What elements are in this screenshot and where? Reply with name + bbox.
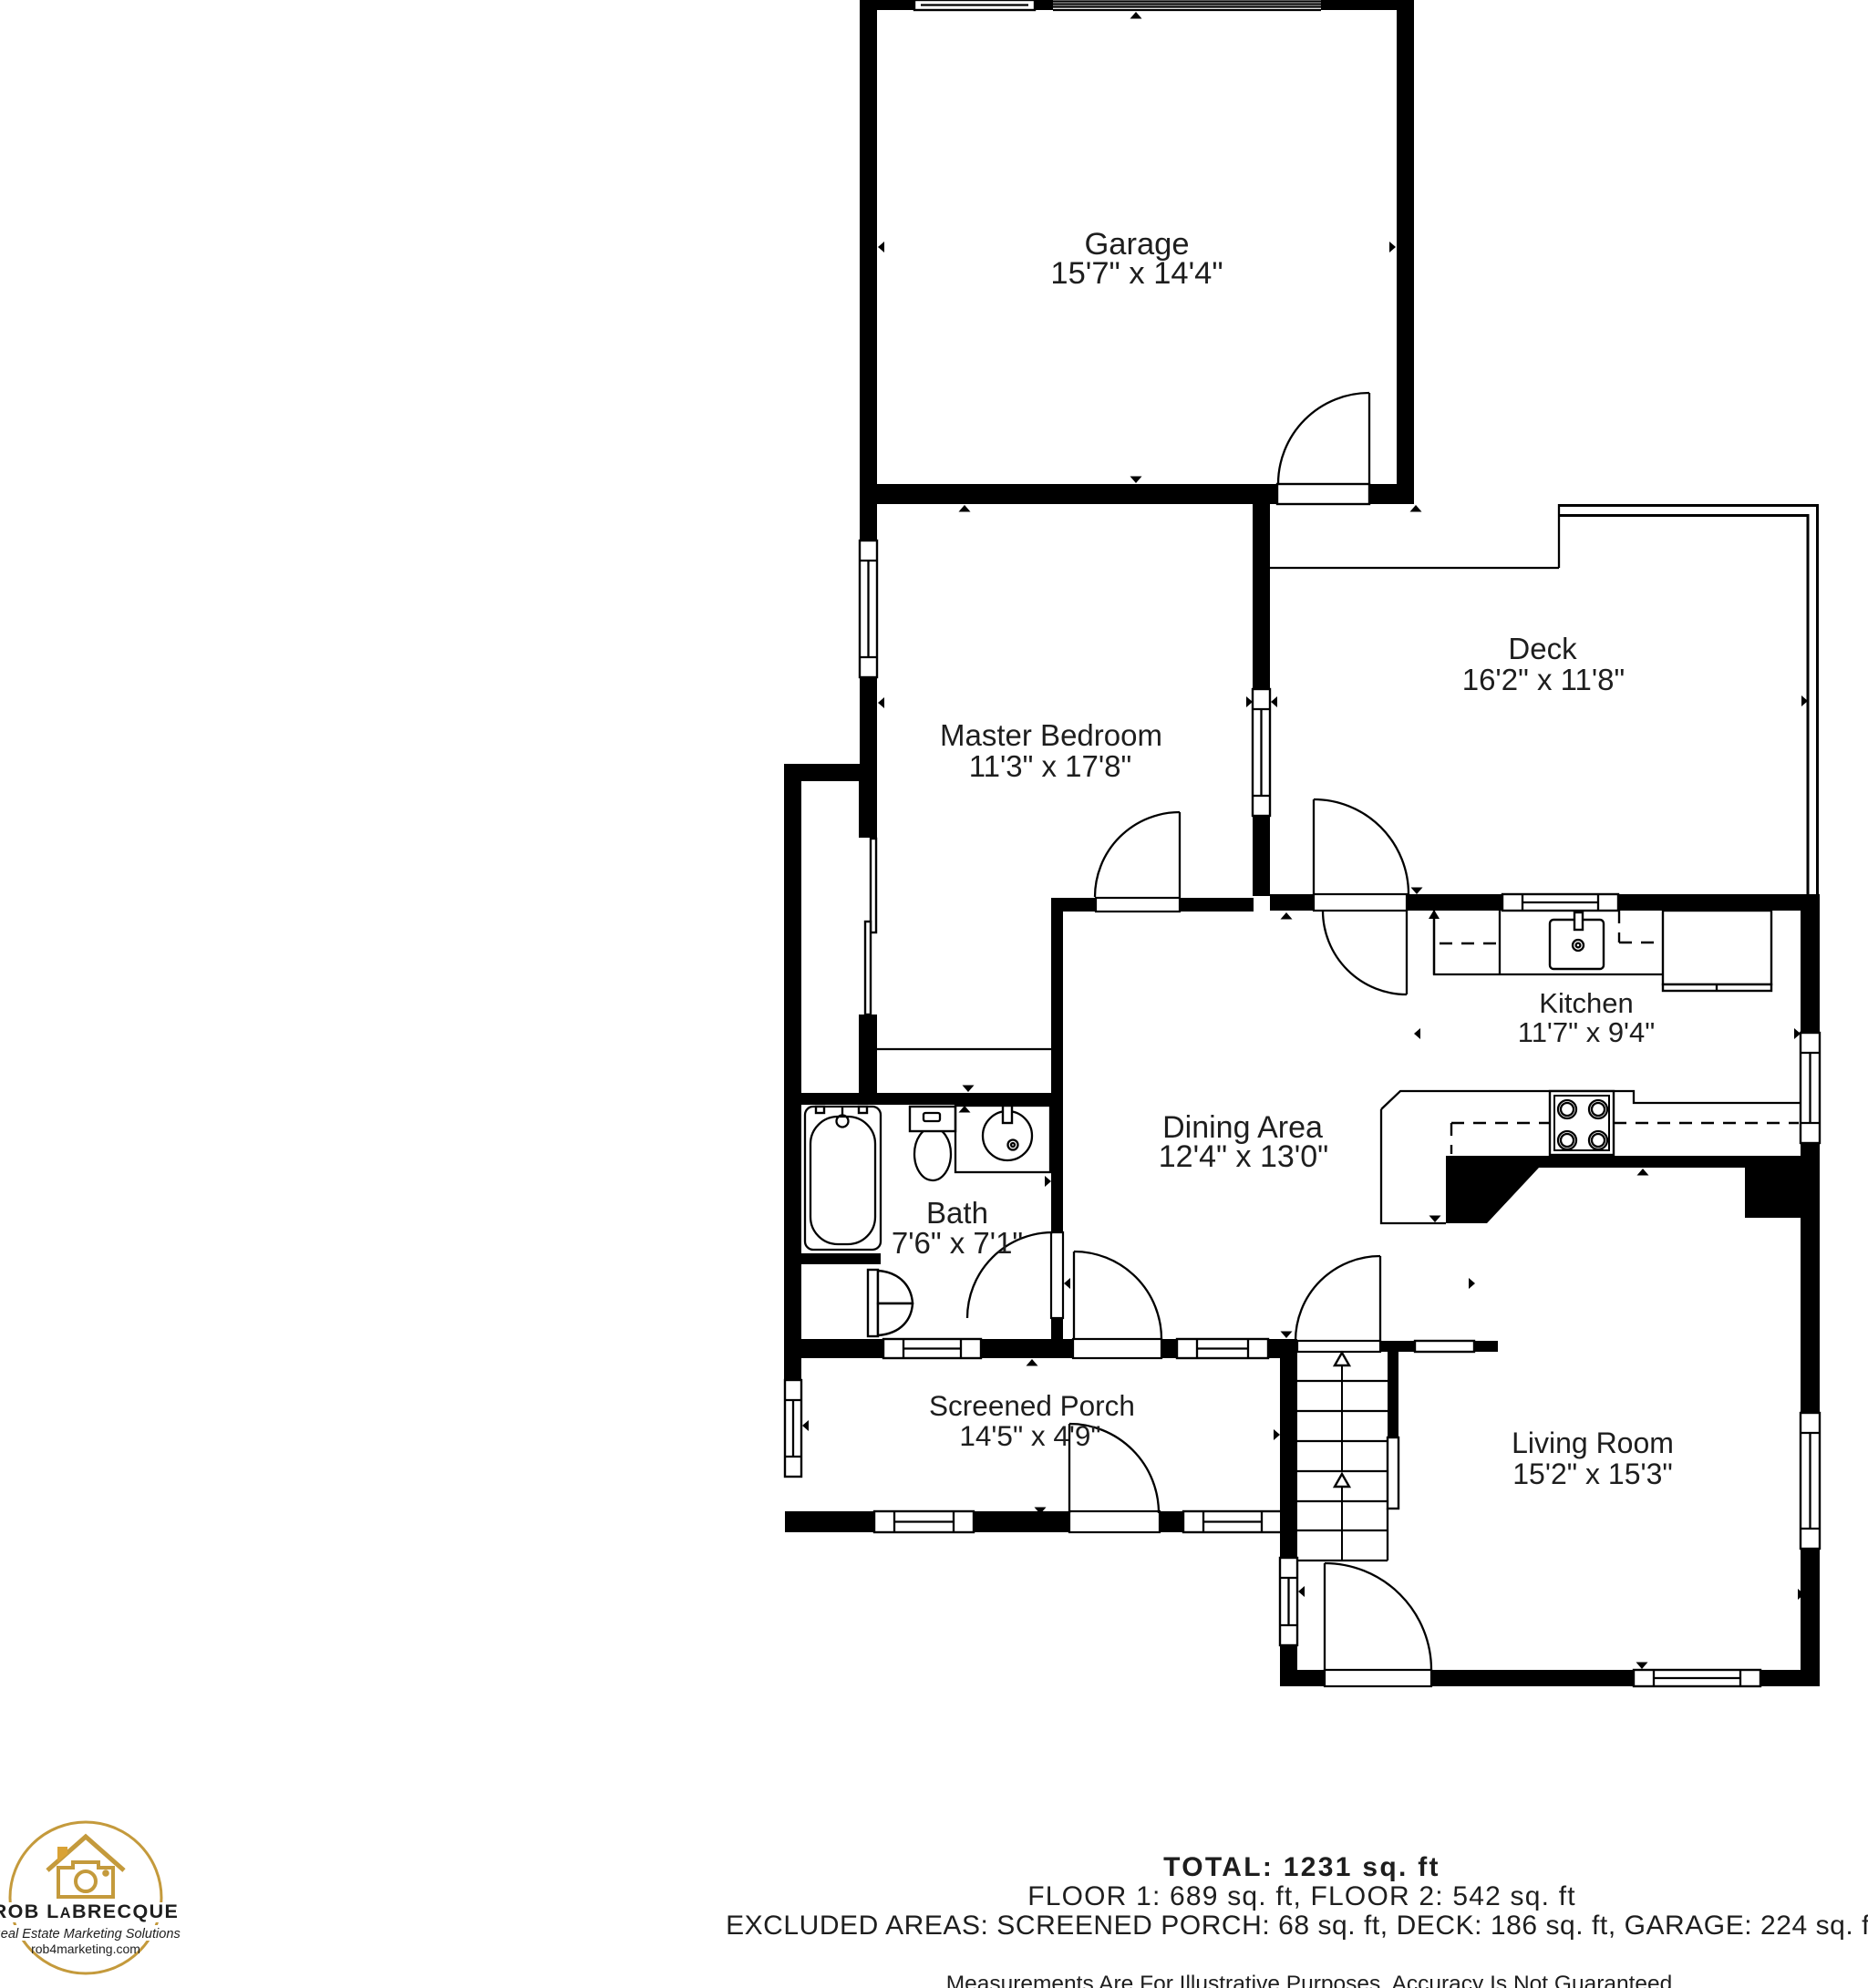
svg-text:Deck: Deck — [1508, 632, 1577, 665]
svg-text:11'7" x 9'4": 11'7" x 9'4" — [1518, 1016, 1655, 1048]
svg-text:14'5" x 4'9": 14'5" x 4'9" — [959, 1419, 1100, 1452]
svg-text:12'4" x 13'0": 12'4" x 13'0" — [1159, 1139, 1328, 1174]
svg-text:Real Estate Marketing Solution: Real Estate Marketing Solutions — [0, 1927, 181, 1942]
svg-text:TOTAL: 1231 sq. ft: TOTAL: 1231 sq. ft — [1163, 1852, 1440, 1882]
svg-text:Bath: Bath — [926, 1196, 988, 1230]
svg-text:Master Bedroom: Master Bedroom — [940, 718, 1162, 752]
svg-text:ROB LABRECQUE: ROB LABRECQUE — [0, 1900, 179, 1922]
svg-text:Measurements Are For Illustrat: Measurements Are For Illustrative Purpos… — [946, 1972, 1673, 1988]
svg-text:15'2" x 15'3": 15'2" x 15'3" — [1512, 1458, 1673, 1490]
svg-text:16'2" x 11'8": 16'2" x 11'8" — [1462, 663, 1625, 696]
svg-text:Kitchen: Kitchen — [1539, 987, 1633, 1019]
svg-text:rob4marketing.com: rob4marketing.com — [31, 1942, 140, 1956]
svg-text:11'3" x 17'8": 11'3" x 17'8" — [969, 749, 1132, 783]
svg-text:EXCLUDED AREAS: SCREENED PORCH: EXCLUDED AREAS: SCREENED PORCH: 68 sq. f… — [726, 1911, 1868, 1941]
svg-text:Screened Porch: Screened Porch — [929, 1389, 1135, 1422]
svg-text:Living Room: Living Room — [1512, 1427, 1674, 1459]
svg-text:15'7" x 14'4": 15'7" x 14'4" — [1050, 256, 1223, 291]
svg-text:FLOOR 1: 689 sq. ft, FLOOR 2:: FLOOR 1: 689 sq. ft, FLOOR 2: 542 sq. ft — [1027, 1881, 1576, 1911]
svg-text:7'6" x 7'1": 7'6" x 7'1" — [892, 1226, 1023, 1260]
